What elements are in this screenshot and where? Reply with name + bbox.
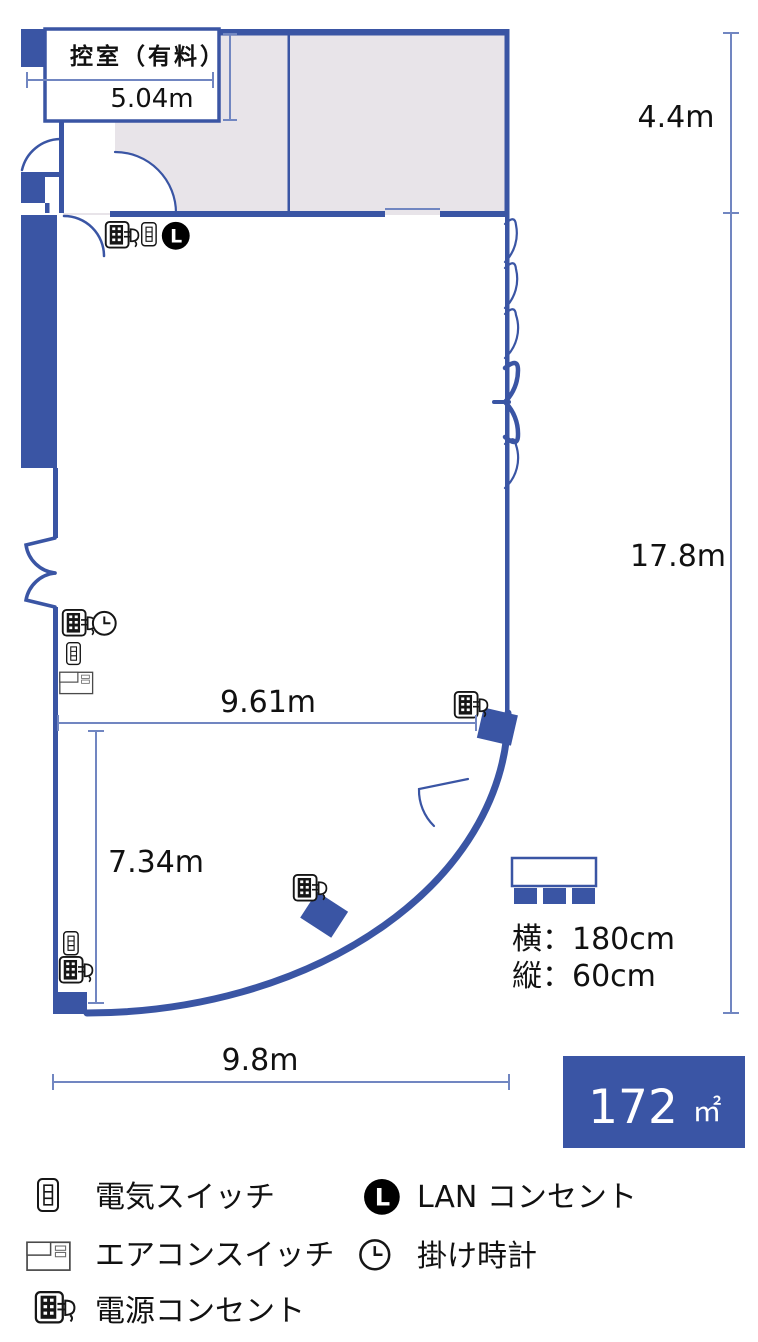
waiting-room-label-box: 控室（有料） 5.04m	[27, 29, 226, 121]
partition-line	[288, 31, 291, 213]
lan-outlet-icon	[364, 1179, 400, 1215]
area-value: 172	[588, 1080, 678, 1135]
dim-right: 17.8m	[630, 539, 726, 574]
light-switch-icon	[64, 932, 78, 955]
dim-middle-width: 9.61m	[220, 685, 316, 720]
legend-power-outlet: 電源コンセント	[95, 1294, 305, 1329]
double-door-arc	[26, 538, 55, 573]
light-switch-icon	[38, 1179, 58, 1211]
door-arc	[64, 216, 104, 256]
dim-bottom: 9.8m	[222, 1043, 299, 1078]
legend-aircon-switch: エアコンスイッチ	[95, 1238, 334, 1273]
dim-hikae-width: 5.04m	[110, 84, 193, 114]
corner-block	[53, 992, 87, 1014]
power-outlet-icon	[36, 1292, 75, 1322]
wall-clock-icon	[93, 612, 116, 635]
wall-pillar	[21, 29, 45, 67]
legend: 電気スイッチ LAN コンセント エアコンスイッチ 掛け時計 電源コンセント	[27, 1179, 637, 1329]
floor-plan-page: L	[0, 0, 758, 1342]
light-switch-icon	[67, 643, 81, 665]
table-icon	[512, 858, 596, 886]
lan-outlet-icon	[162, 222, 190, 250]
double-door-arc	[26, 573, 55, 607]
legend-light-switch: 電気スイッチ	[95, 1180, 275, 1215]
door-arc	[22, 139, 60, 170]
area-unit: ㎡	[692, 1094, 721, 1128]
aircon-switch-icon	[27, 1242, 70, 1270]
table-width-label: 横：180cm	[512, 922, 675, 957]
aircon-switch-icon	[60, 672, 93, 693]
power-outlet-icon	[60, 957, 93, 983]
wall-pillar	[21, 177, 45, 203]
power-outlet-icon	[106, 222, 139, 248]
wall-clock-icon	[360, 1240, 389, 1269]
thick-left-wall	[21, 215, 57, 468]
dim-upper-right: 4.4m	[638, 100, 715, 135]
table-spec: 横：180cm 縦：60cm	[512, 858, 675, 994]
legend-lan-outlet: LAN コンセント	[417, 1180, 637, 1215]
table-depth-label: 縦：60cm	[512, 959, 656, 994]
legend-wall-clock: 掛け時計	[417, 1239, 537, 1274]
waiting-room-label: 控室（有料）	[70, 43, 226, 70]
wall-block	[477, 708, 518, 746]
dim-lower-left: 7.34m	[108, 845, 204, 880]
power-outlet-icon	[63, 610, 96, 636]
light-switch-icon	[142, 223, 156, 246]
area-badge: 172 ㎡	[563, 1056, 745, 1148]
floor-plan-svg: L	[0, 0, 758, 1342]
